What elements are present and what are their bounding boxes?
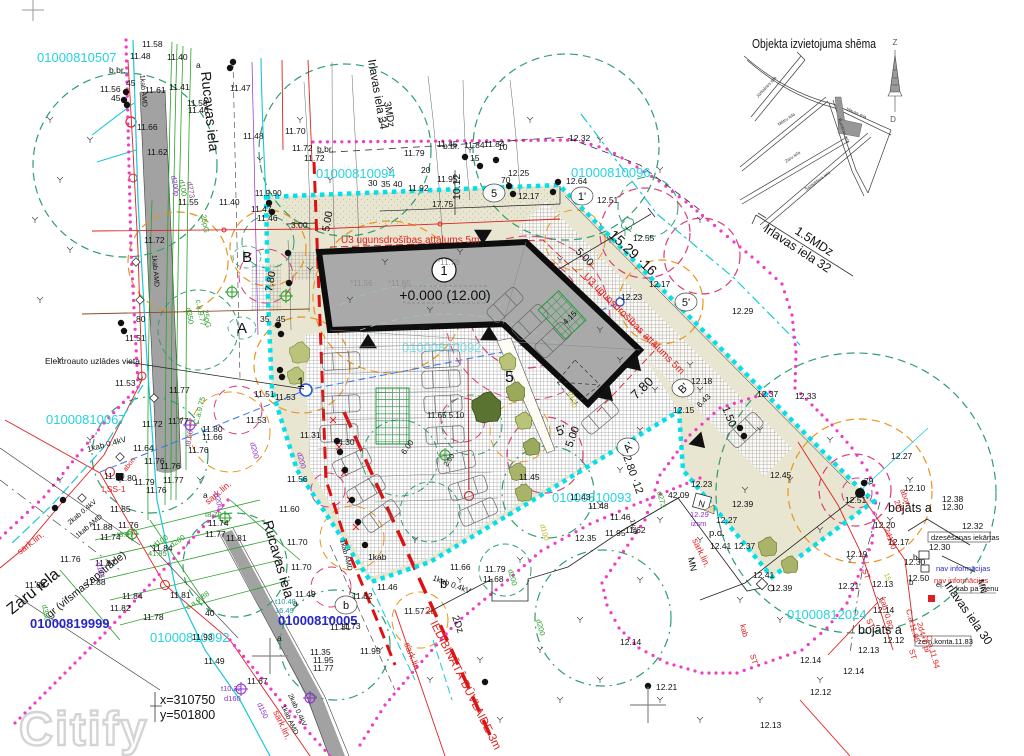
svg-text:11.70: 11.70 [291, 562, 312, 572]
svg-text:11.70: 11.70 [285, 126, 306, 136]
svg-text:11.48: 11.48 [243, 131, 264, 141]
svg-text:11.48: 11.48 [588, 501, 609, 511]
svg-text:11.46: 11.46 [188, 105, 209, 115]
svg-text:11.81: 11.81 [170, 590, 191, 600]
svg-text:4.30: 4.30 [338, 437, 355, 447]
svg-text:12.45: 12.45 [770, 470, 792, 480]
svg-text:12.30: 12.30 [929, 542, 951, 552]
svg-text:11.76: 11.76 [160, 461, 181, 471]
svg-text:b: b [343, 600, 349, 612]
svg-text:B: B [242, 249, 252, 266]
svg-text:a: a [196, 60, 201, 70]
svg-text:15: 15 [470, 153, 480, 163]
svg-text:11.81: 11.81 [226, 533, 247, 543]
svg-text:b: b [909, 578, 914, 587]
svg-text:11.53: 11.53 [275, 392, 296, 402]
svg-text:12.27: 12.27 [716, 515, 738, 525]
svg-text:y=501800: y=501800 [160, 708, 215, 722]
svg-text:a: a [277, 633, 282, 643]
svg-text:11.31: 11.31 [300, 430, 321, 440]
svg-text:12.29: 12.29 [690, 510, 709, 519]
svg-text:11.79: 11.79 [404, 148, 425, 158]
svg-text:12.39: 12.39 [771, 583, 793, 593]
svg-text:12.30: 12.30 [942, 502, 964, 512]
svg-text:12.14: 12.14 [800, 655, 822, 665]
svg-text:11.79: 11.79 [485, 564, 506, 574]
svg-text:11.82: 11.82 [110, 603, 131, 613]
svg-text:izsm: izsm [691, 519, 706, 528]
svg-text:12.13: 12.13 [872, 579, 894, 589]
svg-text:11.72: 11.72 [142, 419, 163, 429]
svg-text:11.9·90: 11.9·90 [255, 189, 282, 198]
svg-text:01000810092: 01000810092 [150, 630, 230, 645]
svg-text:11.77: 11.77 [168, 416, 189, 426]
svg-text:11.77: 11.77 [313, 663, 334, 673]
svg-text:11.88: 11.88 [85, 577, 106, 587]
svg-text:t10.48: t10.48 [275, 597, 296, 606]
svg-text:b.br.: b.br. [109, 65, 126, 75]
svg-text:12.21: 12.21 [838, 581, 860, 591]
svg-text:11.76: 11.76 [118, 520, 139, 530]
svg-text:40: 40 [393, 179, 403, 189]
svg-text:11.70: 11.70 [287, 537, 308, 547]
svg-text:11.65 5.10: 11.65 5.10 [427, 411, 465, 420]
svg-text:11.61: 11.61 [145, 85, 166, 95]
svg-text:*11.85: *11.85 [388, 279, 411, 288]
svg-text:30: 30 [368, 178, 378, 188]
svg-text:01000819999: 01000819999 [30, 616, 110, 631]
svg-text:11.64: 11.64 [133, 443, 154, 453]
svg-text:11.48: 11.48 [130, 51, 151, 61]
svg-text:11.72: 11.72 [304, 153, 325, 163]
svg-text:5: 5 [491, 188, 497, 200]
svg-text:nav informācijas: nav informācijas [936, 564, 990, 573]
svg-text:11.58: 11.58 [142, 39, 163, 49]
svg-text:11.72: 11.72 [144, 235, 165, 245]
svg-text:12.29: 12.29 [732, 306, 754, 316]
svg-text:12.37: 12.37 [734, 541, 756, 551]
svg-text:11.77: 11.77 [163, 475, 184, 485]
svg-text:41.85: 41.85 [148, 549, 167, 558]
svg-text:11.95: 11.95 [605, 528, 626, 538]
svg-text:*11.56: *11.56 [350, 279, 373, 288]
svg-text:Objekta izvietojuma shēma: Objekta izvietojuma shēma [752, 37, 876, 51]
svg-text:11.40: 11.40 [219, 197, 240, 207]
svg-text:1': 1' [578, 191, 586, 203]
svg-text:11.84: 11.84 [122, 591, 143, 601]
svg-text:12.17: 12.17 [649, 279, 671, 289]
svg-text:1kab: 1kab [368, 552, 387, 562]
svg-text:b.br.: b.br. [443, 141, 460, 151]
svg-text:12.12: 12.12 [810, 687, 832, 697]
svg-text:45: 45 [126, 78, 136, 88]
svg-text:12.13: 12.13 [760, 720, 782, 730]
svg-text:12.15: 12.15 [673, 405, 695, 415]
svg-text:12.25: 12.25 [508, 168, 530, 178]
svg-text:12.14: 12.14 [843, 666, 865, 676]
svg-text:12.33: 12.33 [795, 391, 817, 401]
svg-text:LSS-1: LSS-1 [102, 484, 126, 494]
svg-text:d160: d160 [224, 694, 241, 703]
svg-text:5: 5 [505, 369, 514, 386]
svg-text:Z: Z [893, 38, 898, 47]
svg-text:12.18: 12.18 [691, 376, 713, 386]
svg-text:11.46: 11.46 [257, 213, 278, 223]
svg-text:16.49: 16.49 [275, 606, 294, 615]
svg-text:11.95: 11.95 [360, 646, 381, 656]
svg-text:12.23: 12.23 [621, 292, 643, 302]
svg-text:11.93: 11.93 [192, 632, 213, 642]
svg-text:3.00: 3.00 [291, 220, 308, 230]
svg-text:11.49: 11.49 [204, 656, 225, 666]
svg-text:11.51: 11.51 [254, 389, 275, 399]
svg-text:11.46: 11.46 [610, 512, 631, 522]
svg-text:01000810507: 01000810507 [37, 50, 117, 65]
svg-text:A: A [237, 320, 247, 337]
svg-text:dzesēšanas iekārtas: dzesēšanas iekārtas [931, 533, 1000, 542]
svg-text:1: 1 [297, 374, 305, 390]
svg-text:11.66: 11.66 [450, 562, 471, 572]
svg-text:10: 10 [498, 142, 508, 152]
svg-text:t8.97: t8.97 [117, 530, 134, 539]
svg-text:12.17: 12.17 [518, 191, 540, 201]
svg-text:2a: 2a [425, 606, 437, 617]
svg-text:x=310750: x=310750 [160, 693, 215, 707]
svg-text:11.47: 11.47 [230, 83, 251, 93]
svg-text:12.19: 12.19 [846, 549, 868, 559]
svg-text:45: 45 [111, 93, 121, 103]
svg-text:01000810067: 01000810067 [46, 412, 126, 427]
svg-text:11.72: 11.72 [292, 143, 313, 153]
svg-text:Elektroauto uzlādes vieta: Elektroauto uzlādes vieta [45, 356, 140, 366]
svg-text:+0.000 (12.00): +0.000 (12.00) [399, 287, 490, 303]
svg-text:12.32: 12.32 [569, 133, 591, 143]
svg-text:11.60: 11.60 [279, 504, 300, 514]
svg-text:12.39: 12.39 [732, 499, 754, 509]
svg-text:11.76: 11.76 [146, 485, 167, 495]
svg-text:11.56: 11.56 [287, 474, 308, 484]
svg-text:11.67: 11.67 [247, 676, 268, 686]
svg-text:40: 40 [205, 608, 215, 618]
svg-text:12.14: 12.14 [620, 637, 642, 647]
svg-text:11.46: 11.46 [377, 582, 398, 592]
svg-text:11.43: 11.43 [570, 492, 591, 502]
svg-text:Citify: Citify [19, 702, 149, 755]
svg-text:12.23: 12.23 [691, 479, 713, 489]
svg-text:12.55: 12.55 [633, 233, 655, 243]
svg-text:11.84: 11.84 [464, 140, 485, 150]
svg-text:11.74: 11.74 [208, 518, 229, 528]
svg-text:11.85: 11.85 [110, 504, 131, 514]
svg-text:t10.32: t10.32 [221, 684, 242, 693]
svg-text:11.53: 11.53 [246, 415, 267, 425]
svg-text:12.37: 12.37 [757, 389, 779, 399]
svg-text:12.51: 12.51 [597, 195, 619, 205]
svg-text:11.45: 11.45 [519, 472, 540, 482]
svg-text:11.51: 11.51 [125, 333, 146, 343]
svg-text:11.77: 11.77 [205, 529, 226, 539]
svg-text:12.41: 12.41 [753, 570, 775, 580]
svg-text:U3 ugunsdrošības attālums 5m: U3 ugunsdrošības attālums 5m [341, 235, 479, 246]
svg-text:12.27: 12.27 [891, 451, 913, 461]
svg-text:12.32: 12.32 [962, 521, 984, 531]
svg-text:45: 45 [276, 314, 286, 324]
svg-text:*11.78: *11.78 [437, 258, 460, 267]
svg-text:p.d.: p.d. [709, 528, 725, 539]
svg-text:11.53: 11.53 [115, 378, 136, 388]
svg-text:11.76: 11.76 [60, 554, 81, 564]
svg-text:12.21: 12.21 [656, 682, 678, 692]
svg-text:20: 20 [421, 165, 431, 175]
svg-text:11.66: 11.66 [137, 122, 158, 132]
svg-text:5': 5' [682, 297, 690, 309]
svg-text:11.49: 11.49 [295, 589, 316, 599]
svg-text:D: D [890, 115, 896, 124]
svg-text:70: 70 [501, 175, 511, 185]
svg-text:11.62: 11.62 [147, 147, 168, 157]
svg-text:42.09: 42.09 [668, 490, 690, 500]
svg-text:11.88: 11.88 [25, 580, 46, 590]
svg-text:35: 35 [381, 179, 391, 189]
svg-text:12.41: 12.41 [710, 541, 732, 551]
svg-text:11.92: 11.92 [408, 183, 429, 193]
svg-text:12.13: 12.13 [858, 645, 880, 655]
svg-text:t8.79: t8.79 [205, 510, 222, 519]
svg-text:80: 80 [136, 314, 146, 324]
svg-text:11.78: 11.78 [143, 612, 164, 622]
svg-text:11.66: 11.66 [202, 432, 223, 442]
svg-text:b: b [913, 553, 918, 562]
svg-text:10.12: 10.12 [451, 174, 463, 200]
svg-text:12.51': 12.51' [845, 495, 868, 505]
svg-text:35: 35 [260, 314, 270, 324]
svg-text:11.77: 11.77 [169, 385, 190, 395]
svg-text:12.64: 12.64 [566, 176, 588, 186]
svg-text:11.73: 11.73 [340, 621, 361, 631]
svg-text:11.40: 11.40 [167, 52, 188, 62]
svg-text:01000810092: 01000810092 [402, 340, 482, 355]
svg-text:79: 79 [864, 476, 874, 486]
svg-text:11.41: 11.41 [169, 82, 190, 92]
svg-text:11.68: 11.68 [483, 574, 504, 584]
svg-text:11.57: 11.57 [404, 606, 425, 616]
svg-text:12.35: 12.35 [575, 533, 597, 543]
